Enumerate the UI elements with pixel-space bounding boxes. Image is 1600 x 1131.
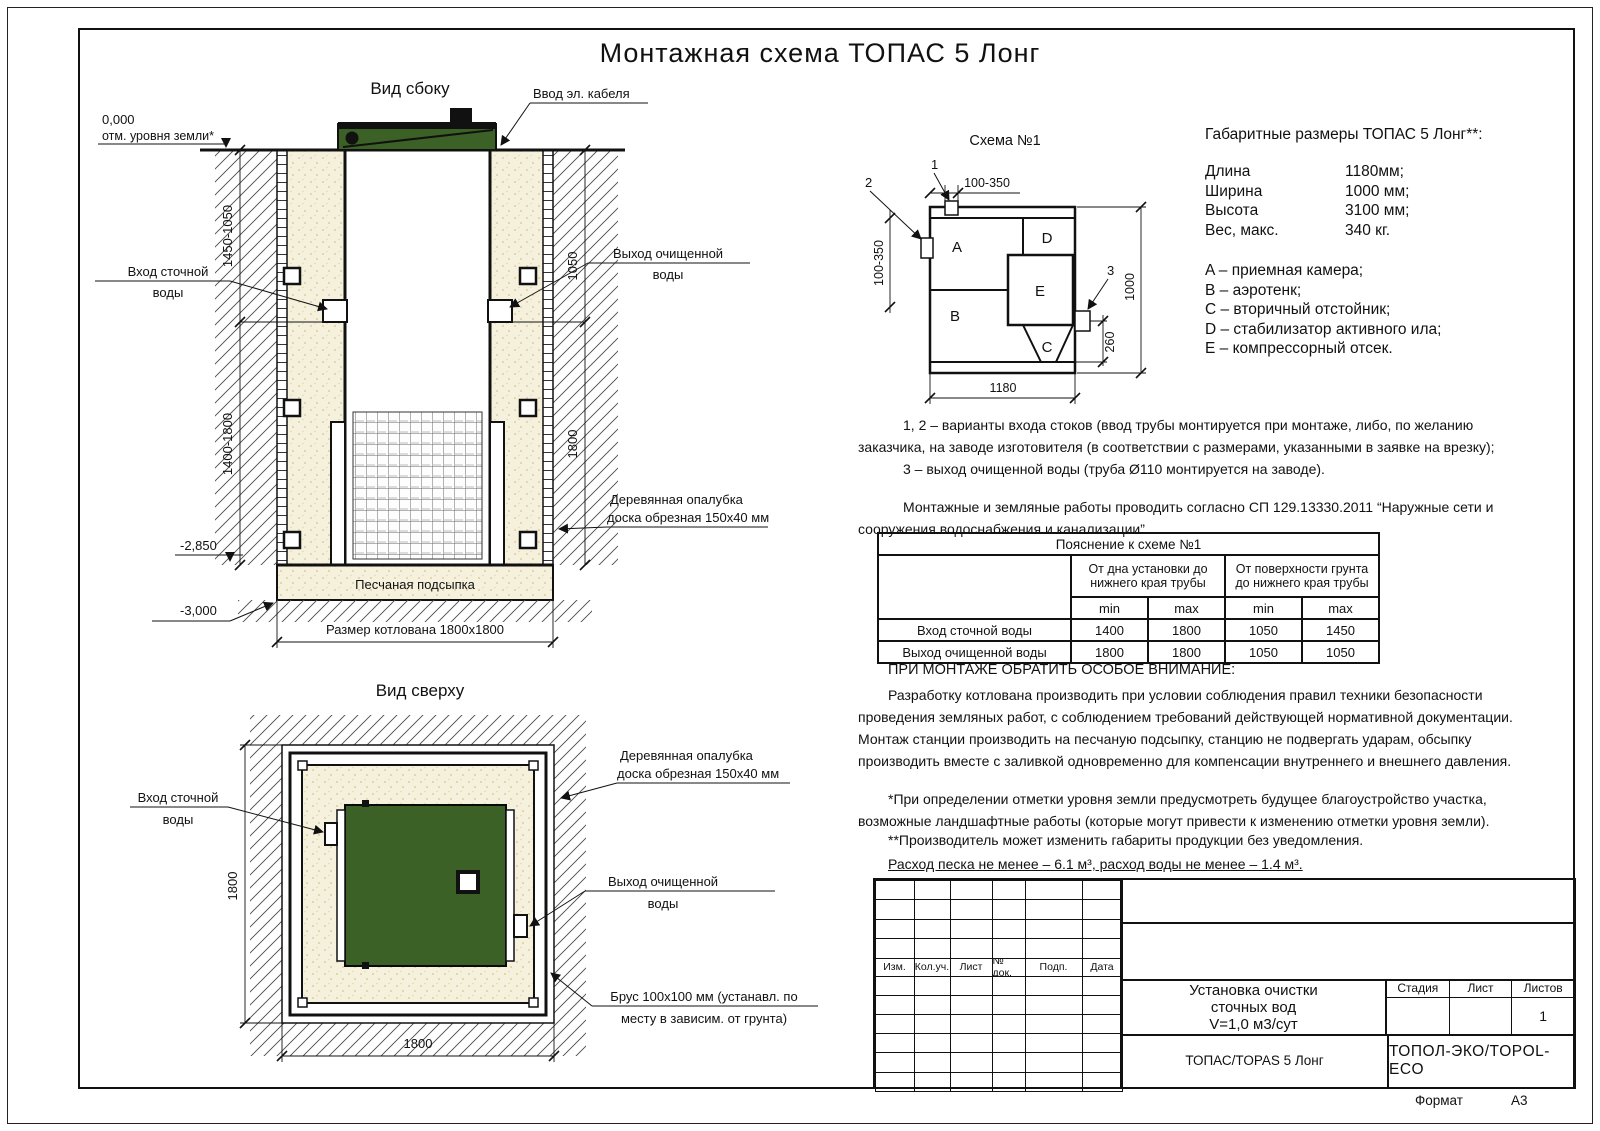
footnote-2: **Производитель может изменить габариты … [858,832,1540,848]
specs-block: Габаритные размеры ТОПАС 5 Лонг**: Длина… [1205,126,1555,359]
spec-row-height: Высота3100 мм; [1205,201,1555,221]
formwork-label-top-line1: Деревянная опалубка [620,748,754,763]
scheme-pipe-3 [1075,311,1090,331]
format-label: Формат [1415,1093,1463,1108]
table-row-outlet: Выход очищенной воды 1800 1800 1050 1050 [878,641,1379,663]
pit-size-label: Размер котлована 1800x1800 [326,622,504,637]
unit-rail-left [337,810,345,961]
level-zero-caption: отм. уровня земли* [102,129,214,143]
dim-right-upper: 1050 [565,252,580,281]
legend-item-c: C – вторичный отстойник; [1205,300,1555,320]
legend-item-d: D – стабилизатор активного ила; [1205,320,1555,340]
rev-header-ndok: № док. [992,958,1026,977]
soil-hatch-right [553,150,618,565]
cable-entry-label: Ввод эл. кабеля [533,86,630,101]
formwork-label-top-line2: доска обрезная 150x40 мм [617,766,779,781]
sheets-value: 1 [1512,998,1574,1034]
footnote-1: *При определении отметки уровня земли пр… [858,788,1540,832]
top-view-drawing: Вид сверху 1800 [130,670,820,1085]
scheme-drawing: Схема №1 1 2 3 100-350 100-350 [845,115,1175,410]
formwork-board-right [543,150,553,565]
compartment-d: D [1042,230,1053,247]
tank-rail-right [490,422,504,583]
level-floor: -2,850 [180,538,217,553]
table-group2: От поверхности грунта до нижнего края тр… [1225,555,1379,597]
table-title: Пояснение к схеме №1 [878,533,1379,555]
rev-header-izm: Изм. [875,958,915,977]
dim-left-lower: 1400-1800 [220,413,235,475]
formwork-label-line1: Деревянная опалубка [610,492,744,507]
format-note: ФорматА3 [1415,1093,1527,1108]
compartment-a: A [952,239,962,256]
tank-grid-section [353,412,482,559]
compartment-e: E [1035,283,1045,300]
drawing-sheet: Монтажная схема ТОПАС 5 Лонг Вид сбоку [0,0,1600,1131]
scheme-title: Схема №1 [969,133,1040,149]
sheets-header: Листов [1512,979,1574,997]
level-zero: 0,000 [102,112,135,127]
note-outlet: 3 – выход очищенной воды (труба Ø110 мон… [858,458,1544,480]
top-view-title: Вид сверху [376,681,465,700]
warning-body: Разработку котлована производить при усл… [858,684,1540,772]
marker-3: 3 [1107,263,1114,278]
legend-item-e: E – компрессорный отсек. [1205,339,1555,359]
stamp-right: Установка очистки сточных вод V=1,0 м3/с… [1122,880,1574,1087]
company-name: ТОПОЛ-ЭКО/TOPOL-ECO [1389,1034,1574,1087]
stage-header: Стадия [1387,979,1450,997]
unit-rail-right [506,810,514,961]
side-view-drawing: Вид сбоку [80,70,780,670]
notes-block: 1, 2 – варианты входа стоков (ввод трубы… [858,414,1544,540]
compartment-legend: A – приемная камера; B – аэротенк; C – в… [1205,261,1555,359]
unit-top-view [345,805,506,966]
inlet-pipe-top [325,823,337,845]
outlet-pipe-top [514,915,527,937]
scheme-dim-bottom: 1180 [990,381,1017,395]
rev-header-koluch: Кол.уч. [914,958,951,977]
rev-header-list: Лист [950,958,993,977]
sand-bedding-label: Песчаная подсыпка [355,577,475,592]
inlet-pipe [323,300,347,322]
revision-table: Изм. Кол.уч. Лист № док. Подп. Дата [875,880,1122,1087]
soil-hatch-bottom [238,600,592,622]
inlet-label-line2: воды [153,285,184,300]
scheme-dim-right: 1000 [1123,273,1137,301]
document-title: Установка очистки сточных вод V=1,0 м3/с… [1122,979,1387,1034]
inlet-label-line1: Вход сточной [128,264,209,279]
note-variants: 1, 2 – варианты входа стоков (ввод трубы… [858,414,1544,458]
explanation-table: Пояснение к схеме №1 От дна установки до… [877,532,1380,664]
warning-heading: ПРИ МОНТАЖЕ ОБРАТИТЬ ОСОБОЕ ВНИМАНИЕ: [888,662,1235,678]
scheme-dim-outlet: 260 [1103,332,1117,353]
table-group1: От дна установки до нижнего края трубы [1071,555,1225,597]
dim-top-view-bottom: 1800 [404,1036,433,1051]
beam-label-line2: месту в зависим. от грунта) [621,1011,787,1026]
outlet-label-top-line1: Выход очищенной [608,874,718,889]
compartment-c: C [1042,339,1053,356]
title-block: Изм. Кол.уч. Лист № док. Подп. Дата Уста… [873,878,1576,1089]
formwork-label-line2: доска обрезная 150x40 мм [607,510,769,525]
tank-rail-left [331,422,345,583]
inlet-label-top-line2: воды [163,812,194,827]
inlet-label-top-line1: Вход сточной [138,790,219,805]
outlet-label-top-line2: воды [648,896,679,911]
rev-header-podp: Подп. [1025,958,1083,977]
dim-right-lower: 1800 [565,430,580,459]
formwork-board-left [277,150,287,565]
sheet-header: Лист [1450,979,1513,997]
marker-2: 2 [865,175,872,190]
side-view-title: Вид сбоку [370,79,450,98]
dim-left-upper: 1450-1050 [220,205,235,267]
outlet-pipe [488,300,512,322]
marker-1: 1 [931,157,938,172]
stage-value [1387,998,1450,1034]
dim-top-view-left: 1800 [225,872,240,901]
product-name: ТОПАС/TOPAS 5 Лонг [1122,1034,1389,1087]
page-title: Монтажная схема ТОПАС 5 Лонг [520,38,1120,69]
scheme-pipe-2 [921,238,933,258]
table-row-inlet: Вход сточной воды 1400 1800 1050 1450 [878,619,1379,641]
vent-cap [450,108,472,124]
sheet-value [1450,998,1513,1034]
level-bottom: -3,000 [180,603,217,618]
scheme-dim-left: 100-350 [872,240,886,286]
scheme-pipe-1 [945,201,958,215]
specs-heading: Габаритные размеры ТОПАС 5 Лонг**: [1205,126,1555,144]
legend-item-b: B – аэротенк; [1205,281,1555,301]
outlet-label-line2: воды [653,267,684,282]
spec-row-width: Ширина1000 мм; [1205,182,1555,202]
spec-row-weight: Вес, макс.340 кг. [1205,221,1555,241]
scheme-dim-top: 100-350 [964,176,1010,190]
spec-row-length: Длина1180мм; [1205,162,1555,182]
rev-header-data: Дата [1082,958,1123,977]
vent-square [458,872,478,892]
tank-lid [338,108,496,150]
consumption-note: Расход песка не менее – 6.1 м³, расход в… [888,856,1303,872]
outlet-label-line1: Выход очищенной [613,246,723,261]
compartment-b: B [950,308,960,325]
format-value: А3 [1511,1093,1528,1108]
beam-label-line1: Брус 100x100 мм (устанавл. по [610,989,797,1004]
legend-item-a: A – приемная камера; [1205,261,1555,281]
